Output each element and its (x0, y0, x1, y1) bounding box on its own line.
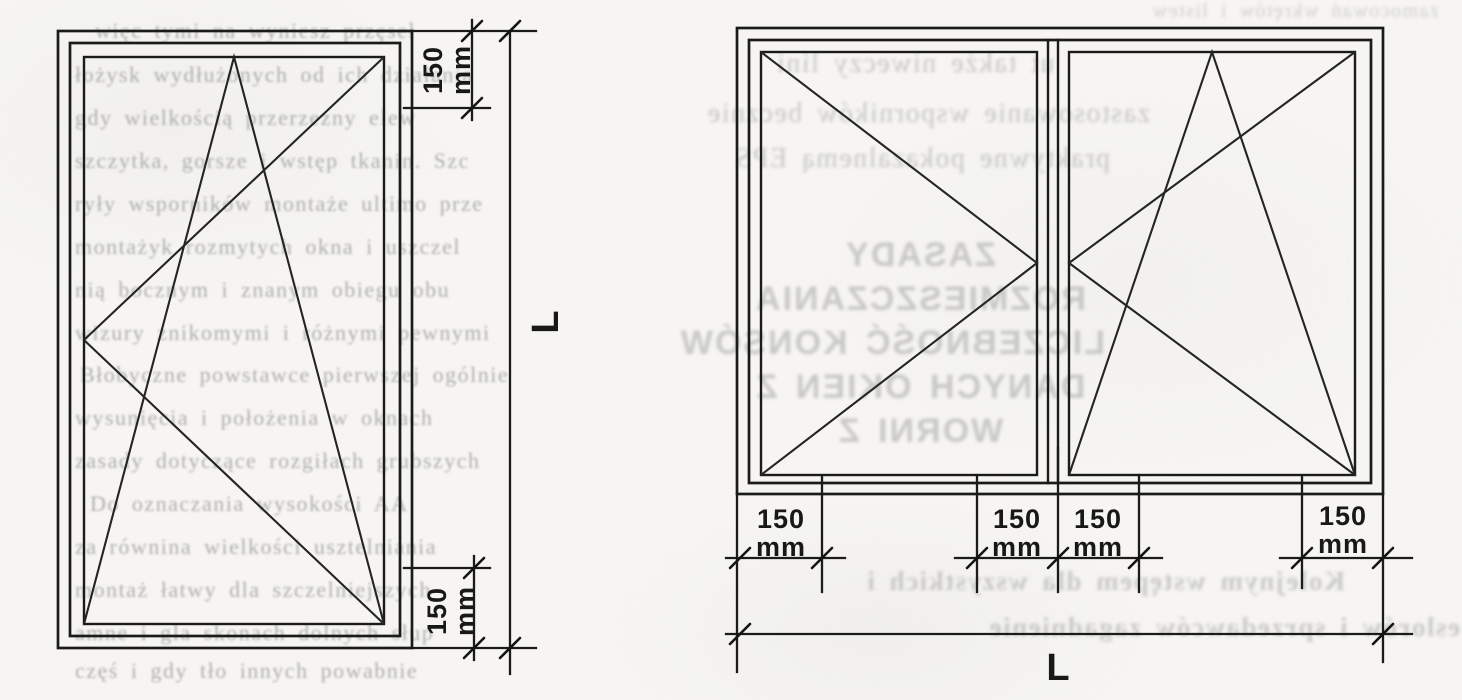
left-outer-frame (58, 31, 412, 648)
dim-label-L-width: L (1046, 647, 1069, 689)
dim-label-150-1-unit: mm (756, 532, 806, 562)
left-inner-frame (70, 43, 400, 636)
dim-label-150-2-unit: mm (992, 532, 1042, 562)
left-window-sash (84, 57, 384, 624)
left-sash (84, 57, 384, 624)
right-casement-tilt-symbol (1069, 52, 1355, 475)
dimension-ticks (462, 21, 520, 658)
dim-label-150-2-value: 150 (993, 504, 1041, 534)
dim-label-150-bottom-unit: mm (450, 586, 480, 636)
dim-label-150-top-unit: mm (446, 45, 476, 95)
dim-label-L-height: L (525, 310, 567, 333)
left-window-frame (58, 31, 412, 648)
dim-label-150-3-unit: mm (1073, 532, 1123, 562)
right-window-diagram: 150 mm 150 mm 150 mm 150 mm L (726, 28, 1412, 689)
dimension-ticks (730, 548, 1393, 644)
left-casement-sash (761, 52, 1037, 475)
right-casement-turn-symbol (1069, 52, 1355, 475)
left-casement-turn-symbol (761, 52, 1037, 475)
dim-label-150-4-unit: mm (1318, 529, 1368, 559)
scanned-book-page: więc tymi na wyniesz przęseł łożysk wydł… (0, 0, 1462, 700)
dim-label-150-bottom-value: 150 (422, 587, 452, 635)
right-casement-sash (1069, 52, 1355, 475)
dim-label-150-1-value: 150 (757, 504, 805, 534)
dim-label-150-top-value: 150 (418, 46, 448, 94)
left-dimensioning: 150 mm 150 mm L (404, 20, 567, 674)
left-window-diagram: 150 mm 150 mm L (58, 20, 567, 674)
window-technical-diagrams: 150 mm 150 mm L (0, 0, 1462, 700)
left-turn-opening-symbol (84, 57, 384, 624)
dim-label-150-3-value: 150 (1074, 504, 1122, 534)
dim-label-150-4-value: 150 (1319, 501, 1367, 531)
left-tilt-opening-symbol (84, 57, 384, 624)
